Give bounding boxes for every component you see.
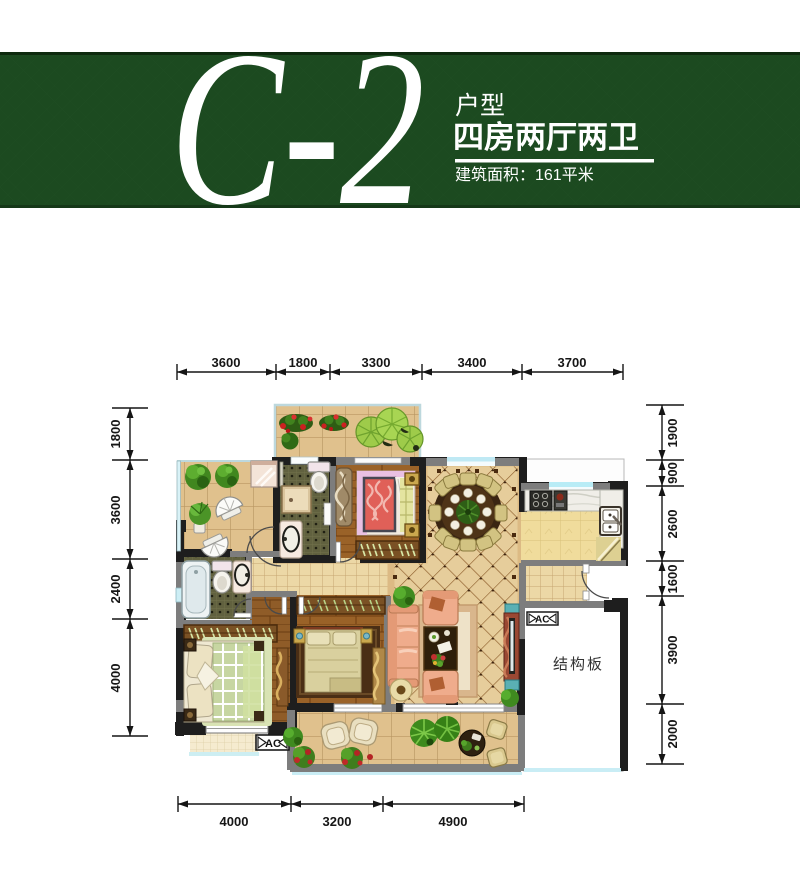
svg-text:四房两厅两卫: 四房两厅两卫 <box>453 120 639 155</box>
svg-text:1900: 1900 <box>665 419 680 448</box>
svg-text:4000: 4000 <box>220 814 249 829</box>
svg-text:1600: 1600 <box>665 565 680 594</box>
svg-text:3700: 3700 <box>558 355 587 370</box>
svg-text:3400: 3400 <box>458 355 487 370</box>
svg-text:2000: 2000 <box>665 720 680 749</box>
svg-text:900: 900 <box>665 462 680 484</box>
svg-text:2400: 2400 <box>108 575 123 604</box>
svg-text:C-2: C-2 <box>170 5 425 251</box>
svg-text:建筑面积：161平米: 建筑面积：161平米 <box>455 166 594 184</box>
svg-text:AC: AC <box>535 615 549 626</box>
svg-text:结构板: 结构板 <box>553 655 604 673</box>
svg-text:3200: 3200 <box>323 814 352 829</box>
svg-text:AC: AC <box>265 738 281 750</box>
svg-text:4900: 4900 <box>439 814 468 829</box>
svg-text:2600: 2600 <box>665 510 680 539</box>
svg-text:3600: 3600 <box>212 355 241 370</box>
svg-text:1800: 1800 <box>289 355 318 370</box>
svg-text:3600: 3600 <box>108 496 123 525</box>
svg-text:1800: 1800 <box>108 420 123 449</box>
svg-text:户型: 户型 <box>455 92 505 120</box>
svg-text:3300: 3300 <box>362 355 391 370</box>
svg-text:3900: 3900 <box>665 636 680 665</box>
svg-text:4000: 4000 <box>108 664 123 693</box>
